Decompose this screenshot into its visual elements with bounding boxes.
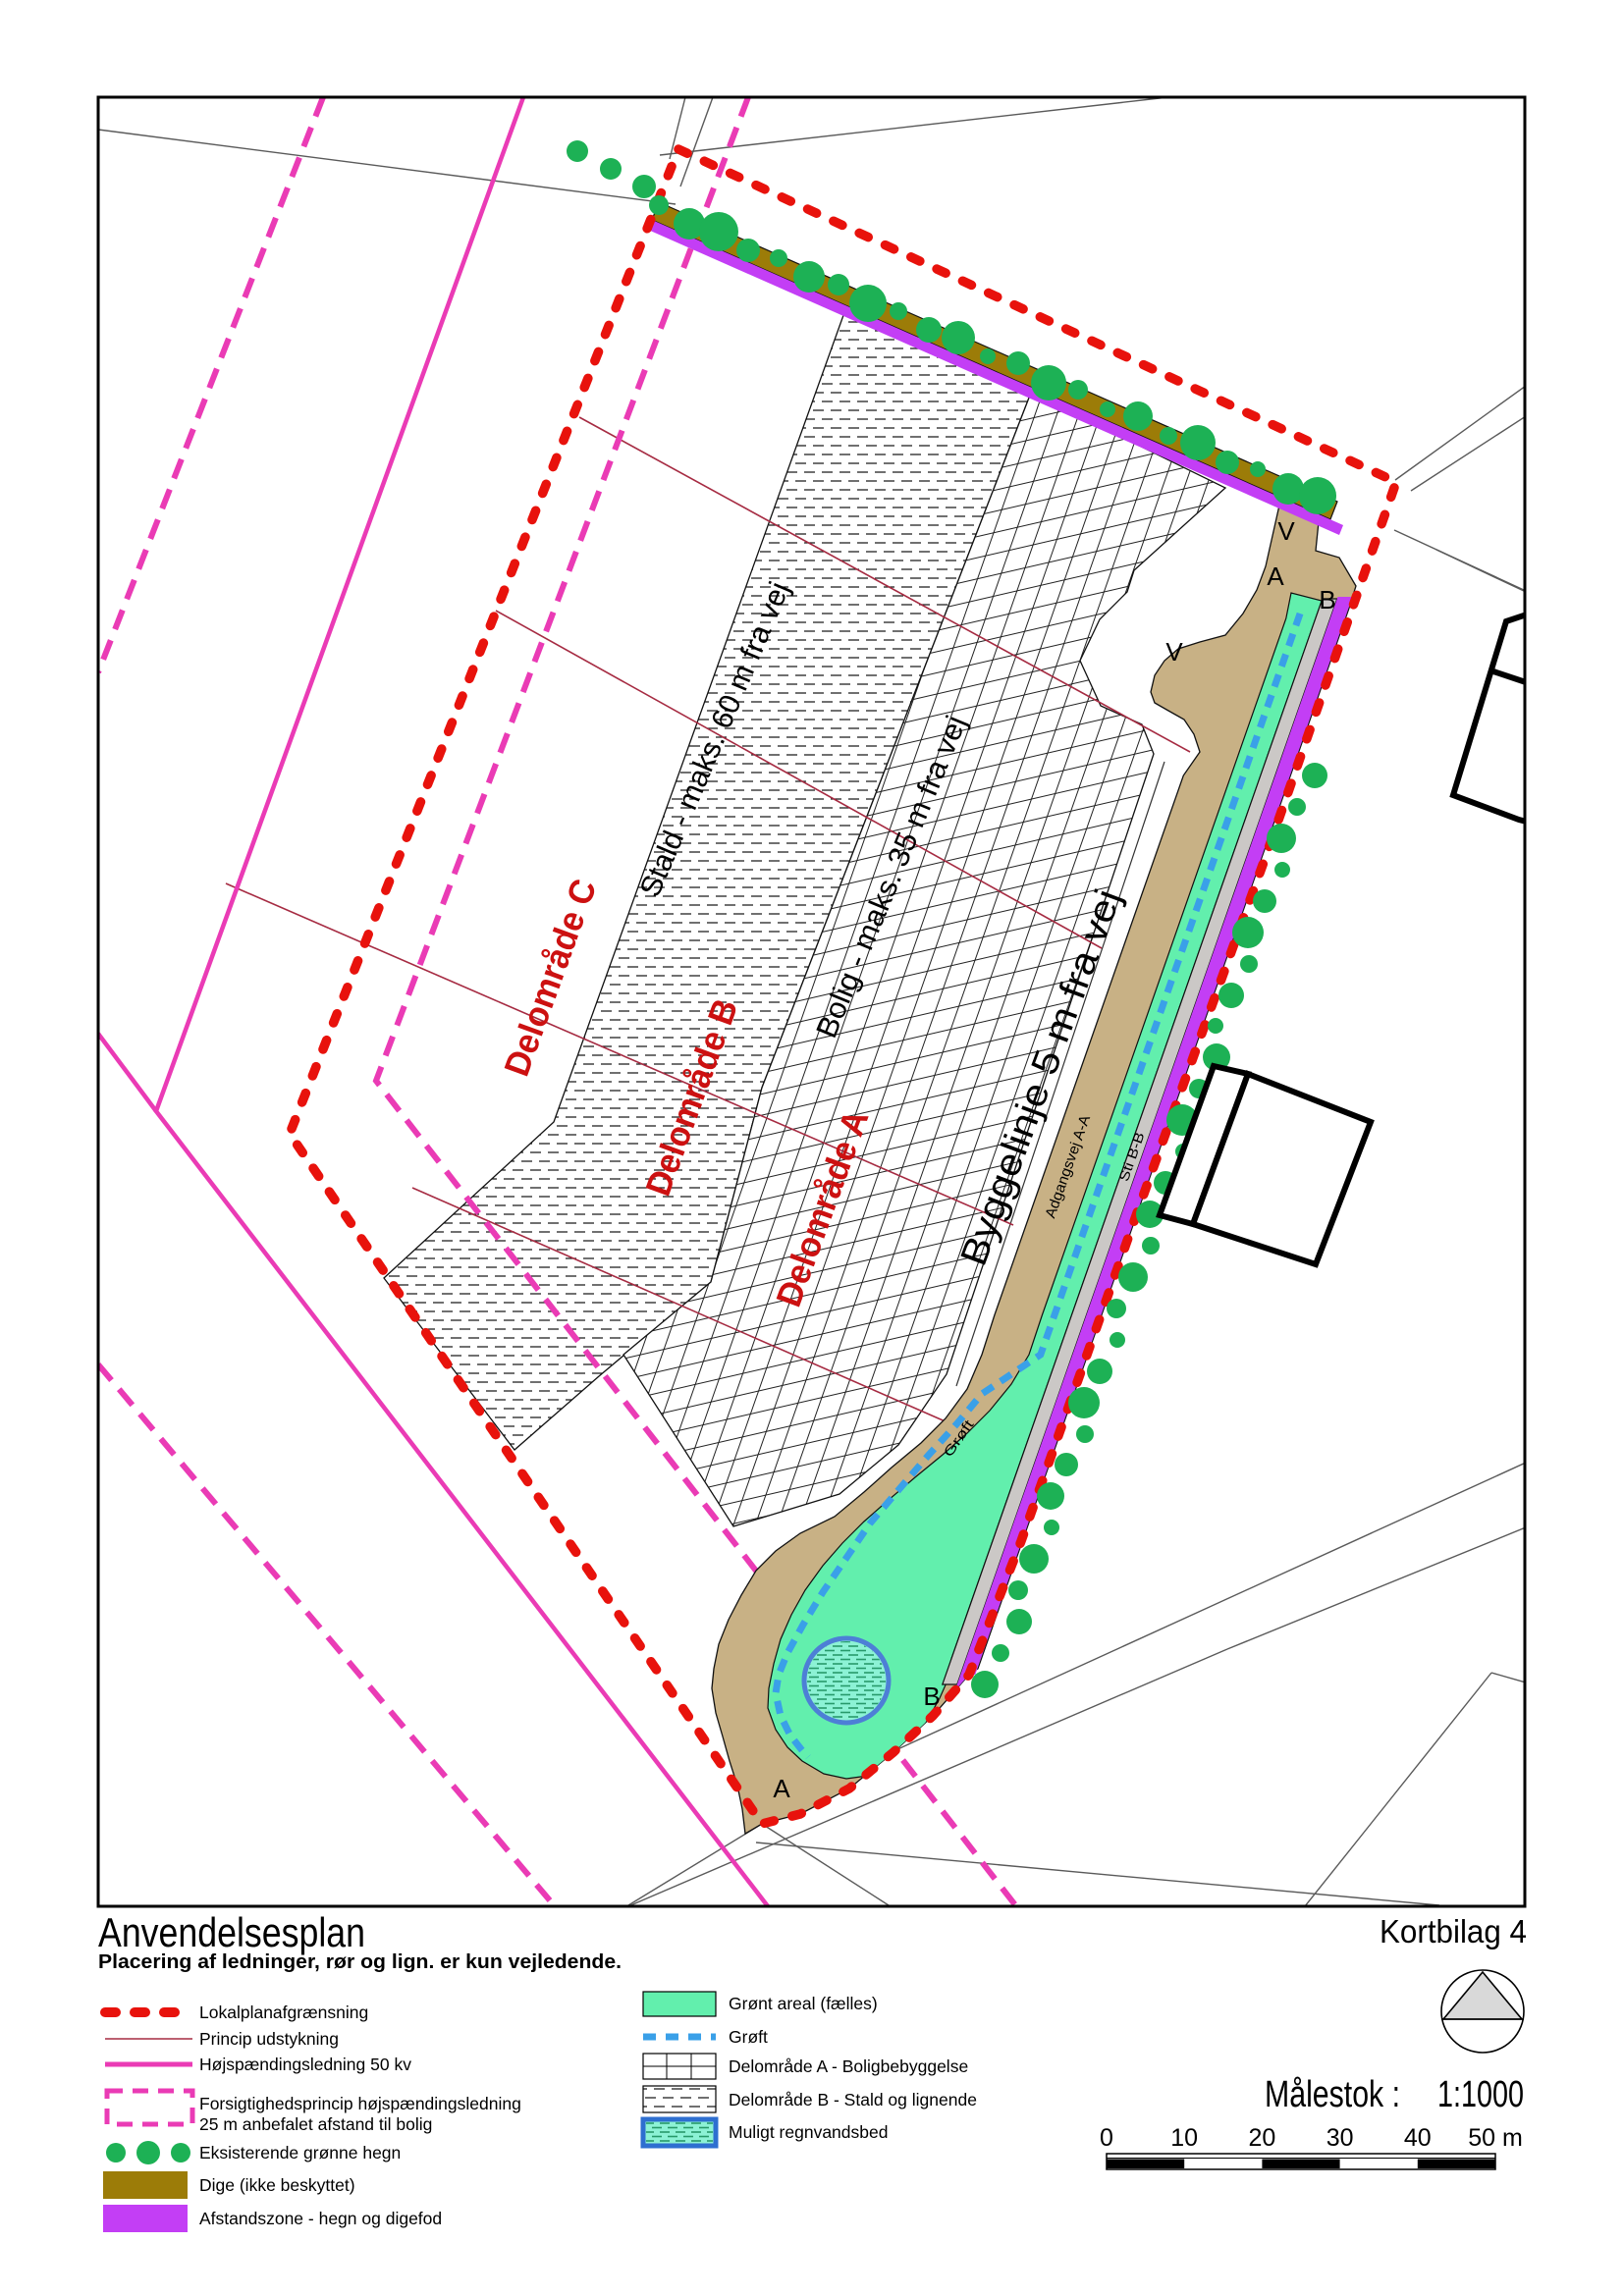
svg-text:40: 40 <box>1404 2124 1432 2152</box>
svg-text:Eksisterende grønne hegn: Eksisterende grønne hegn <box>199 2143 401 2163</box>
svg-text:Lokalplanafgrænsning: Lokalplanafgrænsning <box>199 2002 368 2022</box>
svg-text:Anvendelsesplan: Anvendelsesplan <box>98 1909 365 1955</box>
svg-text:Grøft: Grøft <box>729 2027 768 2047</box>
svg-text:0: 0 <box>1100 2124 1113 2152</box>
svg-text:V: V <box>1277 516 1295 546</box>
svg-text:B: B <box>923 1682 940 1711</box>
svg-text:Muligt regnvandsbed: Muligt regnvandsbed <box>729 2122 888 2142</box>
svg-text:Placering af ledninger, rør og: Placering af ledninger, rør og lign. er … <box>98 1951 622 1973</box>
svg-text:20: 20 <box>1248 2124 1275 2152</box>
svg-text:V: V <box>1165 637 1183 667</box>
svg-text:25 m anbefalet afstand til bol: 25 m anbefalet afstand til bolig <box>199 2114 432 2134</box>
svg-text:B: B <box>1319 585 1335 614</box>
svg-text:Dige (ikke beskyttet): Dige (ikke beskyttet) <box>199 2175 355 2195</box>
svg-text:Kortbilag 4: Kortbilag 4 <box>1380 1913 1527 1949</box>
svg-text:50 m: 50 m <box>1468 2124 1523 2152</box>
svg-text:A: A <box>1267 561 1284 591</box>
svg-text:10: 10 <box>1170 2124 1198 2152</box>
svg-text:Afstandszone - hegn og digefod: Afstandszone - hegn og digefod <box>199 2209 442 2228</box>
svg-text:Delområde B - Stald og lignend: Delområde B - Stald og lignende <box>729 2090 977 2109</box>
svg-text:Målestok :: Målestok : <box>1265 2074 1400 2115</box>
svg-text:Højspændingsledning 50 kv: Højspændingsledning 50 kv <box>199 2055 411 2074</box>
svg-text:30: 30 <box>1326 2124 1354 2152</box>
svg-text:A: A <box>773 1774 790 1803</box>
svg-text:1:1000: 1:1000 <box>1437 2074 1524 2115</box>
svg-text:Princip udstykning: Princip udstykning <box>199 2029 339 2049</box>
svg-text:Grønt areal (fælles): Grønt areal (fælles) <box>729 1994 878 2013</box>
svg-text:Delområde A - Boligbebyggelse: Delområde A - Boligbebyggelse <box>729 2056 968 2076</box>
svg-text:Forsigtighedsprincip højspænd: Forsigtighedsprincip højspændingsledning <box>199 2094 521 2113</box>
